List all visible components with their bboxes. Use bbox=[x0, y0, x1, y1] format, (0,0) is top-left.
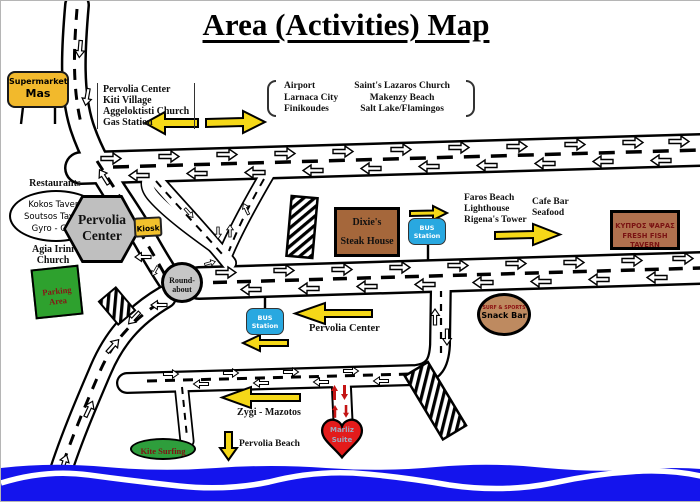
ne-direction-sign: Airport Larnaca City Finikoudes Saint's … bbox=[267, 80, 475, 117]
arrow-west-bus2 bbox=[243, 335, 288, 351]
agia-irini-church-label: Agia Irini Church bbox=[19, 244, 87, 266]
pervolia-center-direction-label: Pervolia Center bbox=[309, 323, 380, 334]
faros-beach-label: Faros Beach Lighthouse Rigena's Tower bbox=[464, 193, 527, 226]
bracket-left bbox=[267, 80, 276, 117]
bus-station-lower: BUS Station bbox=[246, 308, 284, 335]
arrow-west-pervolia-center bbox=[295, 303, 372, 324]
marliz-suite-heart: Marliz Suite bbox=[319, 414, 365, 464]
sea bbox=[1, 465, 700, 501]
supermarket-mas-sign: Supermarket Mas bbox=[7, 71, 69, 108]
kite-surfing: Kite Surfing bbox=[130, 438, 196, 460]
dixies-steak-house: Dixie's Steak House bbox=[334, 207, 400, 257]
kiosk-sign: Kiosk bbox=[133, 216, 162, 237]
arrow-east-faros bbox=[495, 224, 560, 245]
parking-area: Parking Area bbox=[31, 265, 84, 320]
fresh-fish-tavern: ΚΥΠΡΟΣ ΨΑΡΑΣ FRESH FISH TAVERN bbox=[610, 210, 680, 250]
zygi-mazotos-label: Zygi - Mazotos bbox=[219, 407, 319, 418]
cafe-bar-label: Cafe Bar Seafood bbox=[532, 197, 569, 219]
nw-direction-sign: Pervolia Center Kiti Village Aggeloktist… bbox=[97, 83, 195, 129]
arrow-south-pervolia-beach bbox=[220, 432, 237, 460]
roundabout: Round- about bbox=[161, 262, 203, 303]
bus-station-upper: BUS Station bbox=[408, 218, 446, 245]
pervolia-beach-label: Pervolia Beach bbox=[239, 439, 300, 450]
restaurants-label: Restaurants bbox=[15, 178, 95, 189]
hatched-block-beach bbox=[405, 362, 466, 439]
activities-map: Area (Activities) Map Supermarket Mas Pe… bbox=[0, 0, 700, 502]
map-title: Area (Activities) Map bbox=[161, 7, 531, 43]
bracket-right bbox=[466, 80, 475, 117]
arrow-east-ne-sign bbox=[206, 111, 265, 133]
hatched-block-center bbox=[286, 196, 317, 258]
surf-sports-snack-bar: SURF & SPORTS Snack Bar bbox=[477, 293, 531, 336]
